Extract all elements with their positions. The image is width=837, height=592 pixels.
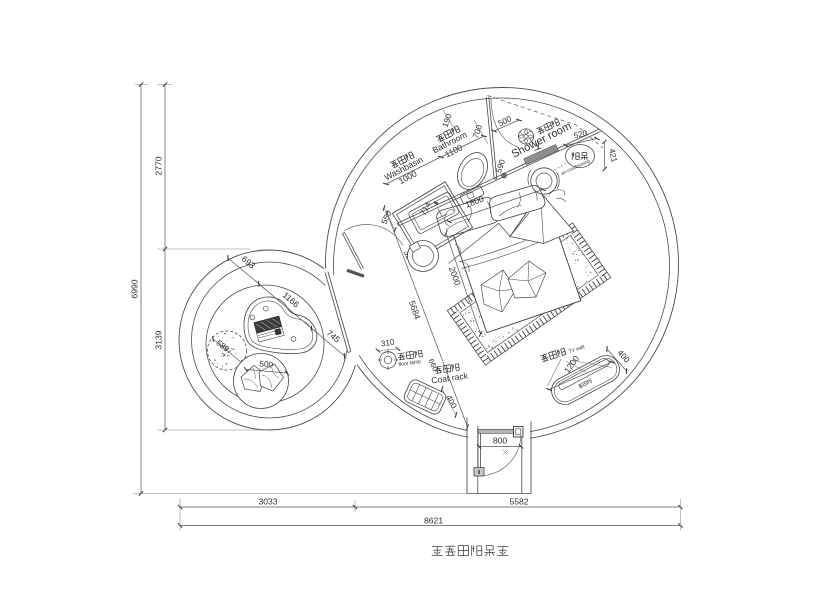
svg-text:2770: 2770	[154, 156, 164, 175]
svg-text:5582: 5582	[509, 497, 528, 507]
svg-text:3139: 3139	[154, 330, 164, 349]
svg-text:3033: 3033	[258, 497, 277, 507]
svg-text:800: 800	[493, 436, 508, 446]
svg-text:500: 500	[259, 359, 274, 369]
svg-text:6990: 6990	[130, 279, 140, 298]
svg-text:8621: 8621	[424, 516, 443, 526]
